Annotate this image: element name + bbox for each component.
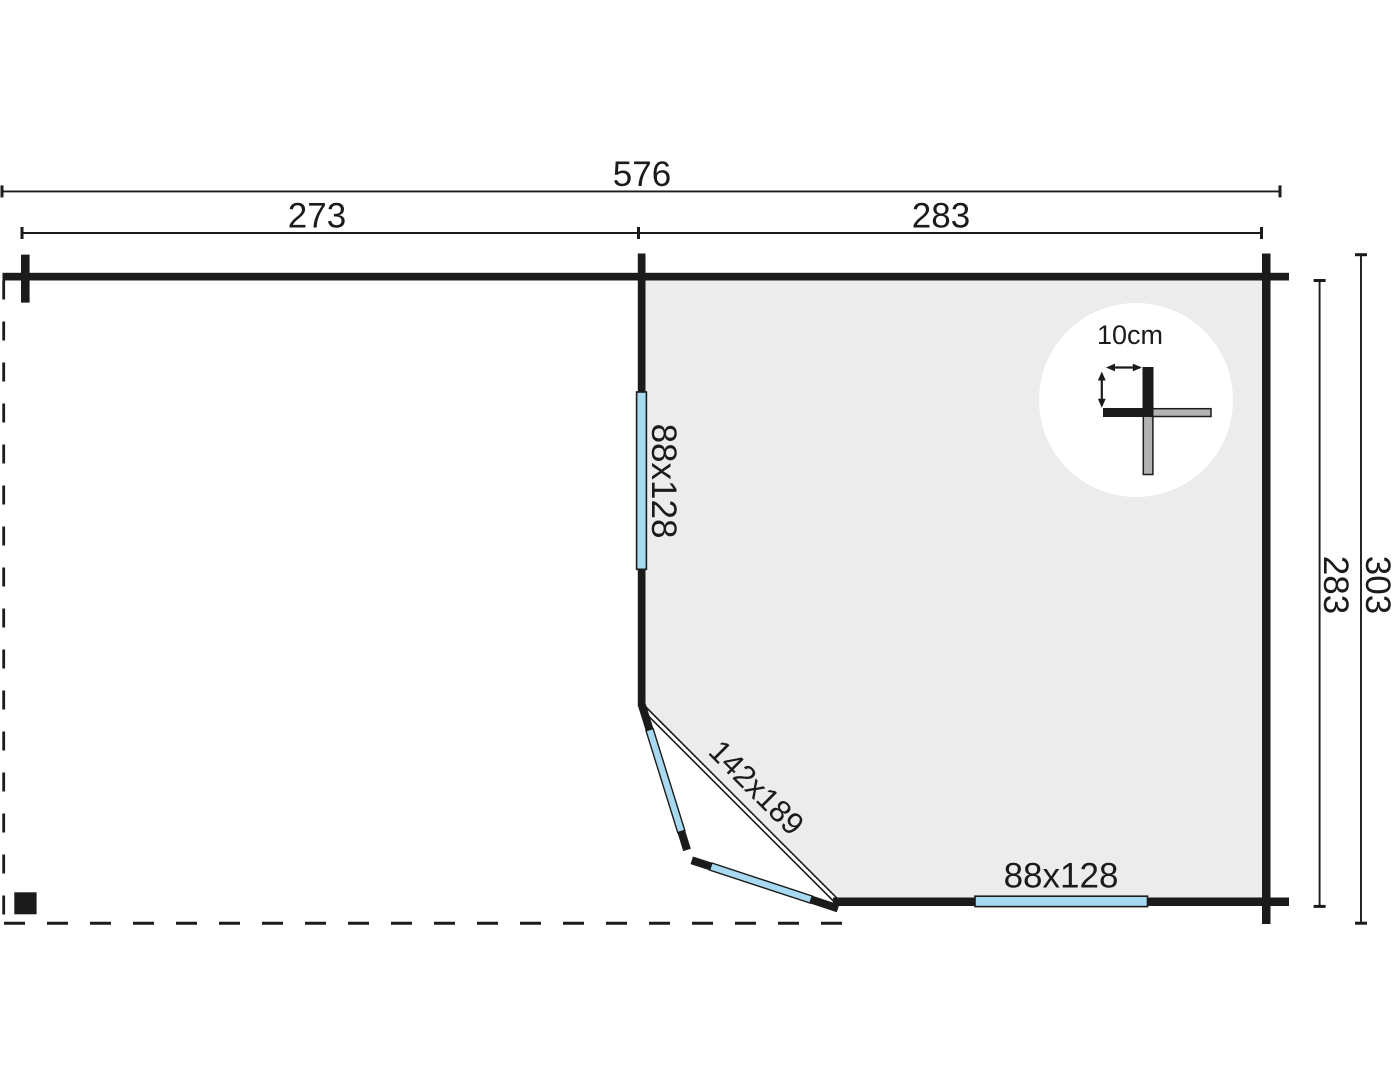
svg-text:576: 576 [613, 155, 671, 194]
svg-text:283: 283 [1316, 556, 1355, 614]
svg-text:10cm: 10cm [1097, 320, 1163, 350]
svg-text:303: 303 [1358, 556, 1397, 614]
svg-text:273: 273 [288, 197, 346, 236]
svg-text:88x128: 88x128 [1004, 857, 1119, 896]
svg-text:88x128: 88x128 [644, 424, 683, 539]
svg-text:283: 283 [912, 197, 970, 236]
